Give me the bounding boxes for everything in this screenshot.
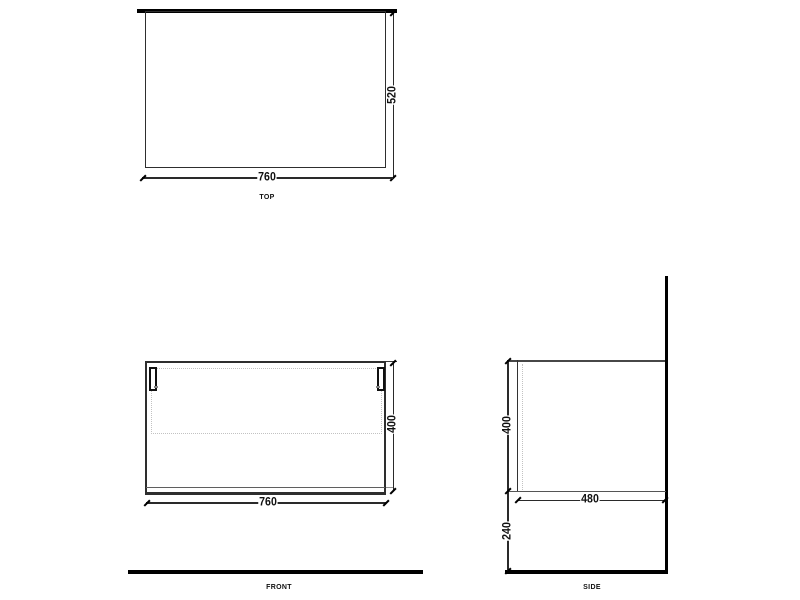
door-handle-left [149,367,157,391]
front-bottom-shelf-line [146,487,385,488]
top-width-dimension-value: 760 [257,172,276,184]
front-height-dimension-value: 400 [387,414,399,433]
side-top-edge-line [507,360,665,362]
wall-line [665,276,668,574]
front-width-dimension-value: 760 [258,497,277,509]
dimension-tick [382,500,389,507]
handle-mount [376,386,380,389]
technical-drawing-canvas: 520 760 TOP 400 760 FR [0,0,800,600]
handle-mount [154,386,158,389]
top-view-outline [145,11,386,168]
top-depth-dimension-value: 520 [387,85,399,104]
door-handle-right [377,367,385,391]
side-front-edge-line [517,360,519,491]
floor-clearance-dimension-value: 240 [502,521,514,540]
hidden-door-thickness-line [522,364,523,490]
front-floor-line [128,570,423,574]
side-depth-dimension-value: 480 [580,494,599,506]
side-floor-line [505,570,668,574]
top-view-label: TOP [259,194,274,201]
hidden-inner-panel-outline [151,368,382,434]
front-view-label: FRONT [266,584,292,591]
side-view-label: SIDE [583,584,601,591]
side-bottom-edge-line [507,491,666,492]
side-height-dimension-value: 400 [502,415,514,434]
